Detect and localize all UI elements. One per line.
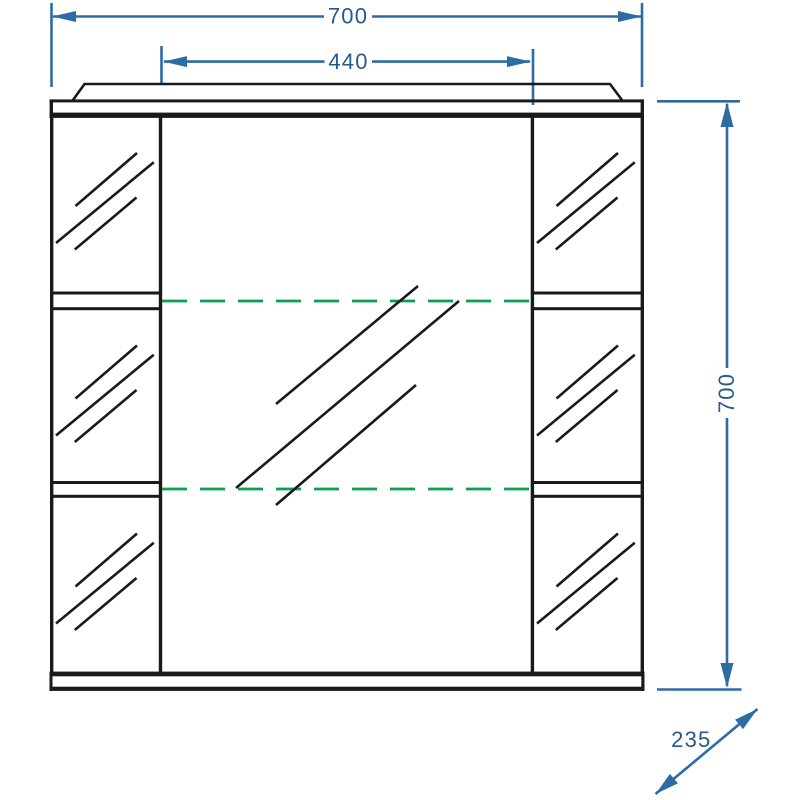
svg-text:700: 700 [714,373,739,413]
svg-text:235: 235 [671,727,711,752]
svg-text:700: 700 [328,4,368,29]
svg-text:440: 440 [328,49,368,74]
